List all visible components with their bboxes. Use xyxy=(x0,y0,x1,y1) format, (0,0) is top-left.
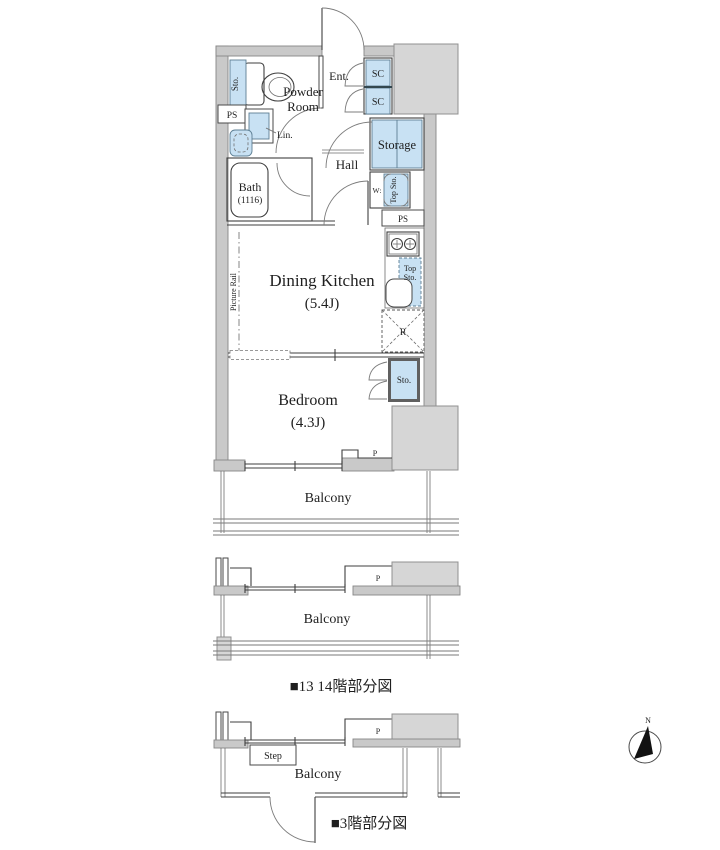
storage-label: Storage xyxy=(378,138,417,152)
bath-label: Bath xyxy=(239,180,262,194)
floor-plan-page: Sto. PS Lin. Powder Room Bath (1116) Ent… xyxy=(0,0,720,850)
bedroom-storage-label: Sto. xyxy=(397,375,411,385)
bedroom-label: Bedroom xyxy=(278,392,338,409)
step-label: Step xyxy=(264,751,282,762)
pillar-label-main: P xyxy=(373,449,378,458)
caption-3f: ■3階部分図 xyxy=(331,815,408,832)
pipe-space-kitchen-label: PS xyxy=(398,214,408,224)
powder-storage-label: Sto. xyxy=(230,77,240,91)
main-balcony-label: Balcony xyxy=(305,491,352,506)
pipe-space-left-label: PS xyxy=(227,111,238,121)
washbasin-icon xyxy=(230,130,252,156)
entrance-core-block xyxy=(394,44,458,114)
kitchen-sink-icon xyxy=(386,279,412,307)
powder-room-label-1: Powder xyxy=(283,84,323,99)
kitchen-top-storage-label-2: Sto. xyxy=(404,273,417,282)
pillar-label-3f: P xyxy=(376,727,381,736)
caption-13-14: ■13 14階部分図 xyxy=(290,678,393,695)
picture-rail-label: Picture Rail xyxy=(229,272,238,311)
floor-plan-drawing: Sto. PS Lin. Powder Room Bath (1116) Ent… xyxy=(0,0,720,850)
compass-north-label: N xyxy=(645,716,651,725)
linen-label: Lin. xyxy=(277,131,293,141)
dining-kitchen-label: Dining Kitchen xyxy=(269,271,375,290)
washer-label: W: xyxy=(373,186,382,195)
balcony-label-13-14: Balcony xyxy=(304,612,351,627)
pillar-label-13-14: P xyxy=(376,574,381,583)
bedroom-core-block xyxy=(392,406,458,470)
dining-kitchen-size-label: (5.4J) xyxy=(305,296,340,312)
laundry-top-storage-label: Top Sto. xyxy=(389,177,398,204)
powder-room-label-2: Room xyxy=(287,99,319,114)
sc-lower-label: SC xyxy=(372,97,385,108)
hall-label: Hall xyxy=(336,157,359,172)
bath-size-label: (1116) xyxy=(238,195,263,206)
balcony-label-3f: Balcony xyxy=(295,767,342,782)
kitchen-top-storage-label-1: Top xyxy=(404,264,416,273)
refrigerator-label: R xyxy=(400,328,407,338)
sc-upper-label: SC xyxy=(372,69,385,80)
bedroom-size-label: (4.3J) xyxy=(291,415,326,431)
page-background xyxy=(0,0,720,850)
